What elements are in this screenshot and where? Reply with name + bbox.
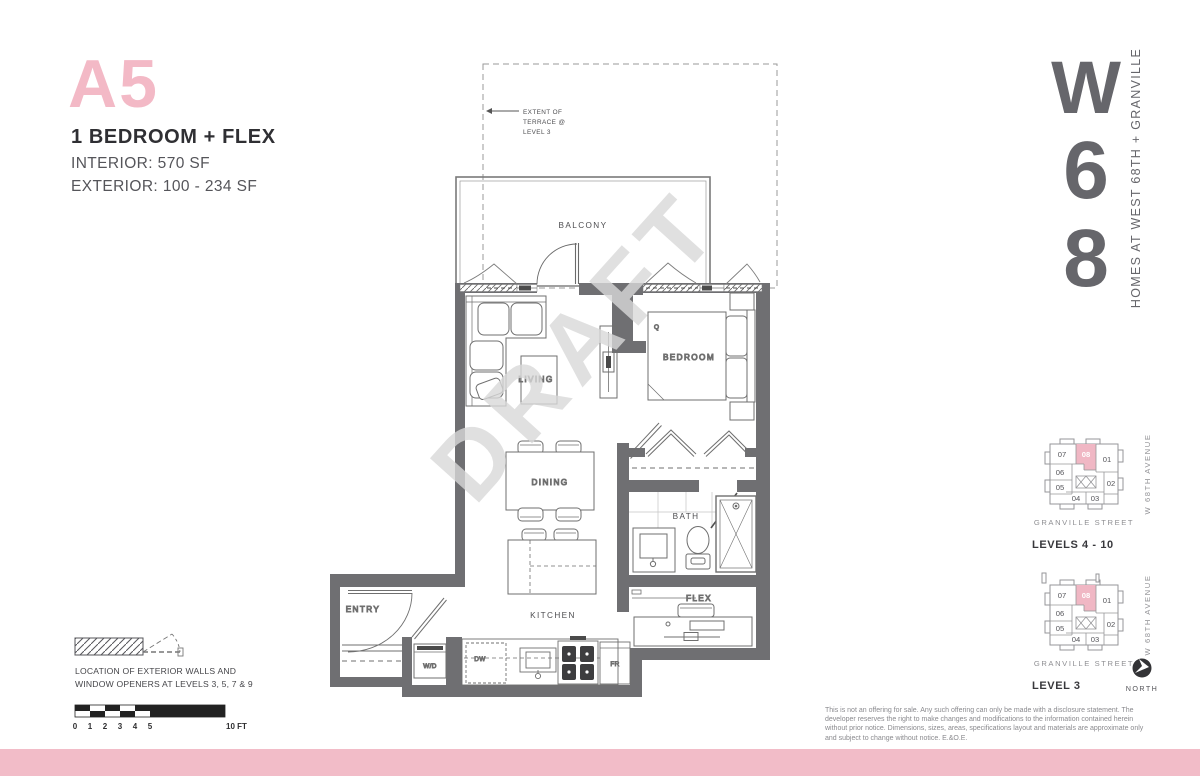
north-label: NORTH: [1126, 684, 1158, 693]
kp1-granville-street: GRANVILLE STREET: [1034, 518, 1134, 527]
exterior-wall-symbol: [75, 634, 183, 656]
floorplan: EXTENT OF TERRACE @ LEVEL 3 BALCONY: [315, 50, 795, 710]
shower: [716, 496, 756, 572]
legend-line1: LOCATION OF EXTERIOR WALLS AND: [75, 666, 236, 676]
logo-tagline: HOMES AT WEST 68TH + GRANVILLE: [1129, 48, 1143, 308]
fridge-tag: FR: [610, 661, 619, 668]
scale-bar: 0 1 2 3 4 5 10 FT: [73, 705, 247, 731]
kp2-w68th-avenue: W 68TH AVENUE: [1143, 574, 1152, 655]
scale-1: 1: [88, 722, 93, 731]
scale-3: 3: [118, 722, 123, 731]
kp1-unit-07: 07: [1058, 450, 1066, 459]
flex-room: FLEX: [632, 590, 752, 646]
kp2-unit-01: 01: [1103, 596, 1111, 605]
legend-line2: WINDOW OPENERS AT LEVELS 3, 5, 7 & 9: [75, 679, 253, 689]
unit-code: A5: [68, 50, 159, 118]
flex-label: FLEX: [686, 594, 712, 603]
kp2-unit-07: 07: [1058, 591, 1066, 600]
right-column: W 6 8 HOMES AT WEST 68TH + GRANVILLE 07 …: [1020, 40, 1188, 710]
disclaimer-text: This is not an offering for sale. Any su…: [825, 706, 1153, 743]
interior-area: INTERIOR: 570 SF: [71, 155, 210, 173]
w68-logo: W 6 8: [1051, 46, 1121, 304]
logo-letter-6: 6: [1063, 125, 1109, 216]
bedroom-closet: [628, 423, 754, 468]
bath-vanity: [633, 528, 675, 572]
kp1-unit-06: 06: [1056, 468, 1064, 477]
kp2-granville-street: GRANVILLE STREET: [1034, 659, 1134, 668]
kp2-unit-03: 03: [1091, 635, 1099, 644]
kp1-unit-08: 08: [1082, 450, 1090, 459]
scale-10ft: 10 FT: [226, 722, 247, 731]
kitchen-label: KITCHEN: [530, 611, 576, 620]
kp2-unit-08: 08: [1082, 591, 1090, 600]
washer-dryer: W/D: [412, 598, 447, 678]
kitchen-counter: DW FR: [462, 636, 630, 685]
toilet: [686, 527, 710, 570]
bath-label: BATH: [673, 512, 700, 521]
kp2-unit-04: 04: [1072, 635, 1080, 644]
kp1-unit-03: 03: [1091, 494, 1099, 503]
scale-4: 4: [133, 722, 138, 731]
kp1-unit-02: 02: [1107, 479, 1115, 488]
kp1-level-label: LEVELS 4 - 10: [1032, 539, 1114, 551]
exterior-area: EXTERIOR: 100 - 234 SF: [71, 178, 257, 196]
bottom-accent-bar: [0, 749, 1200, 776]
kitchen-island: [508, 529, 596, 594]
legend: LOCATION OF EXTERIOR WALLS AND WINDOW OP…: [60, 625, 370, 737]
scale-5: 5: [148, 722, 153, 731]
kp2-unit-02: 02: [1107, 620, 1115, 629]
kp1-w68th-avenue: W 68TH AVENUE: [1143, 433, 1152, 514]
wd-tag: W/D: [423, 663, 437, 670]
terrace-note-line3: LEVEL 3: [523, 129, 551, 136]
dishwasher-tag: DW: [474, 656, 486, 663]
bedroom-label: BEDROOM: [663, 353, 715, 362]
terrace-note-line2: TERRACE @: [523, 119, 565, 126]
balcony-label: BALCONY: [559, 221, 608, 230]
scale-0: 0: [73, 722, 78, 731]
logo-letter-8: 8: [1063, 213, 1109, 304]
dining-label: DINING: [531, 478, 568, 487]
kp2-level-label: LEVEL 3: [1032, 680, 1081, 692]
bathroom: BATH: [629, 492, 756, 572]
logo-letter-w: W: [1051, 46, 1121, 129]
scale-2: 2: [103, 722, 108, 731]
kp1-unit-01: 01: [1103, 455, 1111, 464]
kp2-unit-06: 06: [1056, 609, 1064, 618]
unit-type-title: 1 BEDROOM + FLEX: [71, 126, 276, 149]
kp2-unit-05: 05: [1056, 624, 1064, 633]
stove-burners: [562, 646, 594, 680]
entry-label: ENTRY: [346, 605, 381, 614]
keyplan-level-3: 07 08 01 06 05 04 03 02: [1042, 573, 1123, 650]
terrace-note-line1: EXTENT OF: [523, 109, 562, 116]
kp1-unit-04: 04: [1072, 494, 1080, 503]
north-compass-icon: [1133, 659, 1152, 678]
keyplan-levels-4-10: 07 08 01 06 05 04 03 02: [1045, 439, 1123, 509]
kp1-unit-05: 05: [1056, 483, 1064, 492]
